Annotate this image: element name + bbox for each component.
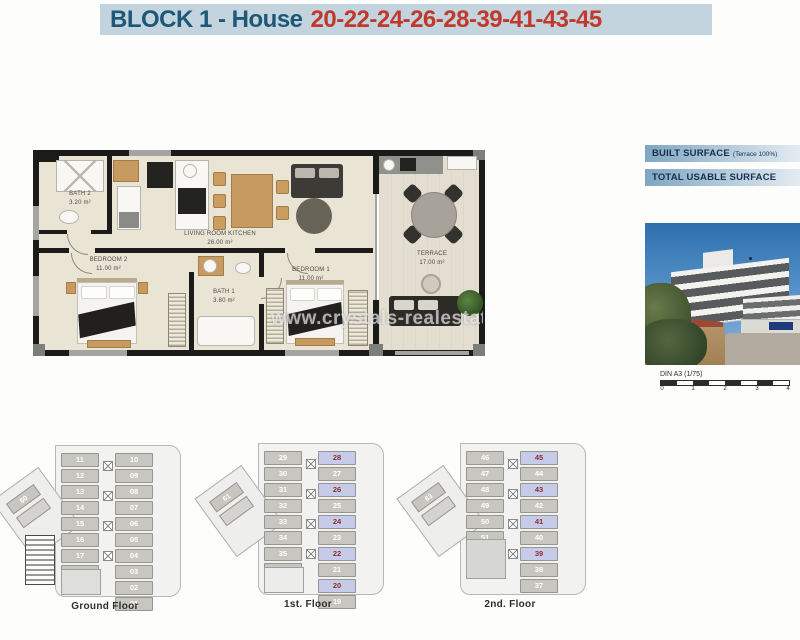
wall-mid-3 (315, 248, 373, 253)
first-floor-diagram: 61 2930313233343536 28272625242322212019… (218, 441, 403, 613)
unit-cell-04: 04 (115, 549, 153, 563)
cooktop (178, 188, 206, 214)
floor-label: Ground Floor (15, 601, 195, 612)
unit-cell-48: 48 (466, 483, 504, 497)
dining-chair-3 (213, 216, 226, 230)
wall-bath1-bedroom1-top (259, 253, 264, 277)
pillar-2 (369, 344, 383, 356)
window-bedroom2 (69, 350, 127, 356)
scale-bar: DIN A3 (1/75) 0 1 2 3 4 (660, 371, 792, 394)
elevator-icon (103, 551, 113, 561)
room-label-living: LIVING ROOM KITCHEN26.00 m² (175, 230, 265, 247)
unit-cell-17: 17 (61, 549, 99, 563)
room-label-bath1: BATH 13.80 m² (199, 288, 249, 305)
kitchen-range (119, 212, 139, 228)
built-surface-bar: BUILT SURFACE (Terrace 100%) (645, 145, 800, 162)
floor-label: 1st. Floor (218, 599, 398, 610)
wall-bath2-bottom-2 (91, 230, 112, 234)
dining-chair-1 (213, 172, 226, 186)
window-left-2 (33, 276, 39, 316)
nightstand (66, 282, 76, 294)
unit-cell-23: 23 (318, 531, 356, 545)
ground-floor-diagram: 60 1112131415161718 10090807060504030201… (15, 443, 200, 615)
unit-cell-25: 25 (318, 499, 356, 513)
dining-chair-5 (276, 206, 289, 220)
window-left-1 (33, 206, 39, 240)
unit-column-left: 1112131415161718 (61, 453, 99, 581)
unit-cell-31: 31 (264, 483, 302, 497)
floor-label: 2nd. Floor (420, 599, 600, 610)
sofa-cushion-2 (319, 168, 339, 178)
total-usable-bar: TOTAL USABLE SURFACE (645, 169, 800, 186)
unit-cell-09: 09 (115, 469, 153, 483)
unit-cell-02: 02 (115, 581, 153, 595)
unit-cell-41: 41 (520, 515, 558, 529)
unit-cell-26: 26 (318, 483, 356, 497)
terrace-railing (395, 351, 469, 355)
elevator-icon (103, 491, 113, 501)
unit-cell-10: 10 (115, 453, 153, 467)
nightstand (138, 282, 148, 294)
elevator-icon (508, 519, 518, 529)
unit-cell-45: 45 (520, 451, 558, 465)
unit-cell-12: 12 (61, 469, 99, 483)
unit-column-right: 454443424140393837 (520, 451, 558, 595)
elevator-icon (508, 459, 518, 469)
pillow (290, 288, 315, 301)
unit-cell-14: 14 (61, 501, 99, 515)
wardrobe-bedroom2 (168, 293, 186, 347)
unit-cell-21: 21 (318, 563, 356, 577)
elevator-icon (103, 521, 113, 531)
rug (296, 198, 332, 234)
unit-cell-34: 34 (264, 531, 302, 545)
pillar-1 (33, 344, 45, 356)
unit-cell-27: 27 (318, 467, 356, 481)
dining-chair-4 (276, 180, 289, 194)
unit-cell-33: 33 (264, 515, 302, 529)
unit-cell-28: 28 (318, 451, 356, 465)
unit-cell-32: 32 (264, 499, 302, 513)
unit-cell-13: 13 (61, 485, 99, 499)
lobby-area (466, 539, 506, 579)
terrace-table (411, 192, 457, 238)
photo-bush (645, 319, 707, 365)
unit-cell-39: 39 (520, 547, 558, 561)
building-photo (645, 223, 800, 365)
unit-cell-20: 20 (318, 579, 356, 593)
apartment-floor-plan: BATH 23.20 m² LIVING ROOM KITCHEN26.00 m… (33, 150, 485, 356)
toilet-bath1 (235, 262, 251, 274)
wall-bath2-right (107, 156, 112, 234)
photo-sign (769, 322, 793, 330)
wall-mid-2 (95, 248, 285, 253)
room-label-bedroom1: BEDROOM 111.00 m² (281, 266, 341, 283)
scale-ticks: 0 1 2 3 4 (660, 386, 790, 394)
lobby-area (61, 569, 101, 595)
wall-bath1-bedroom1-bottom (259, 304, 264, 356)
unit-cell-49: 49 (466, 499, 504, 513)
room-label-bedroom2: BEDROOM 211.00 m² (81, 256, 136, 273)
unit-cell-29: 29 (264, 451, 302, 465)
bed-bench (87, 340, 131, 348)
block-title: BLOCK 1 - House (110, 6, 303, 34)
unit-cell-03: 03 (115, 565, 153, 579)
kitchen-cabinet-wood (113, 160, 139, 182)
lobby-area (264, 567, 304, 593)
unit-cell-07: 07 (115, 501, 153, 515)
unit-column-right: 28272625242322212019 (318, 451, 356, 611)
unit-cell-15: 15 (61, 517, 99, 531)
unit-column-right: 10090807060504030201 (115, 453, 153, 613)
unit-cell-37: 37 (520, 579, 558, 593)
parking-block (25, 535, 55, 585)
unit-cell-44: 44 (520, 467, 558, 481)
unit-cell-38: 38 (520, 563, 558, 577)
window-top (129, 150, 171, 156)
unit-cell-30: 30 (264, 467, 302, 481)
room-label-terrace: TERRACE17.00 m² (407, 250, 457, 267)
elevator-icon (508, 549, 518, 559)
unit-cell-24: 24 (318, 515, 356, 529)
dining-chair-2 (213, 194, 226, 208)
bed-bench (295, 338, 335, 346)
built-surface-label: BUILT SURFACE (652, 145, 730, 162)
toilet-bath2 (59, 210, 79, 224)
pillow (317, 288, 342, 301)
unit-cell-50: 50 (466, 515, 504, 529)
unit-cell-05: 05 (115, 533, 153, 547)
scale-label: DIN A3 (1/75) (660, 371, 792, 378)
shower (56, 160, 104, 192)
page-title-bar: BLOCK 1 - House 20-22-24-26-28-39-41-43-… (100, 4, 712, 35)
fridge (147, 162, 173, 188)
unit-cell-46: 46 (466, 451, 504, 465)
room-label-bath2: BATH 23.20 m² (55, 190, 105, 207)
unit-cell-11: 11 (61, 453, 99, 467)
second-floor-diagram: 63 464748495051 454443424140393837 2nd. … (420, 441, 605, 613)
wall-left (33, 150, 39, 356)
total-usable-label: TOTAL USABLE SURFACE (652, 169, 776, 186)
ac-unit (400, 158, 416, 171)
unit-cell-35: 35 (264, 547, 302, 561)
glass-door (375, 194, 377, 300)
elevator-icon (306, 549, 316, 559)
unit-column-left: 464748495051 (466, 451, 504, 547)
bathtub (197, 316, 255, 346)
pillar-3 (473, 344, 485, 356)
kitchen-sink (183, 164, 197, 178)
dining-table (231, 174, 273, 228)
terrace-pouf (421, 274, 441, 294)
elevator-icon (306, 459, 316, 469)
unit-cell-40: 40 (520, 531, 558, 545)
sofa-cushion-1 (295, 168, 315, 178)
unit-cell-47: 47 (466, 467, 504, 481)
elevator-icon (508, 489, 518, 499)
sink-bath1 (203, 259, 217, 273)
unit-column-left: 2930313233343536 (264, 451, 302, 579)
window-bedroom1 (285, 350, 339, 356)
watermark: www.crystals-realestate (271, 308, 483, 330)
house-numbers: 20-22-24-26-28-39-41-43-45 (311, 6, 602, 34)
elevator-icon (306, 519, 316, 529)
unit-cell-06: 06 (115, 517, 153, 531)
built-surface-note: (Terrace 100%) (733, 151, 777, 158)
unit-cell-08: 08 (115, 485, 153, 499)
unit-cell-42: 42 (520, 499, 558, 513)
pillow (109, 286, 135, 299)
terrace-storage (447, 156, 477, 170)
wall-mid-1 (39, 248, 69, 253)
elevator-icon (306, 489, 316, 499)
unit-cell-16: 16 (61, 533, 99, 547)
wall-bedroom2-bath1 (189, 272, 194, 356)
unit-cell-22: 22 (318, 547, 356, 561)
ac-fan-icon (383, 159, 395, 171)
unit-cell-43: 43 (520, 483, 558, 497)
photo-bird (749, 257, 752, 260)
pillow (81, 286, 107, 299)
wall-bath2-bottom-1 (39, 230, 67, 234)
elevator-icon (103, 461, 113, 471)
